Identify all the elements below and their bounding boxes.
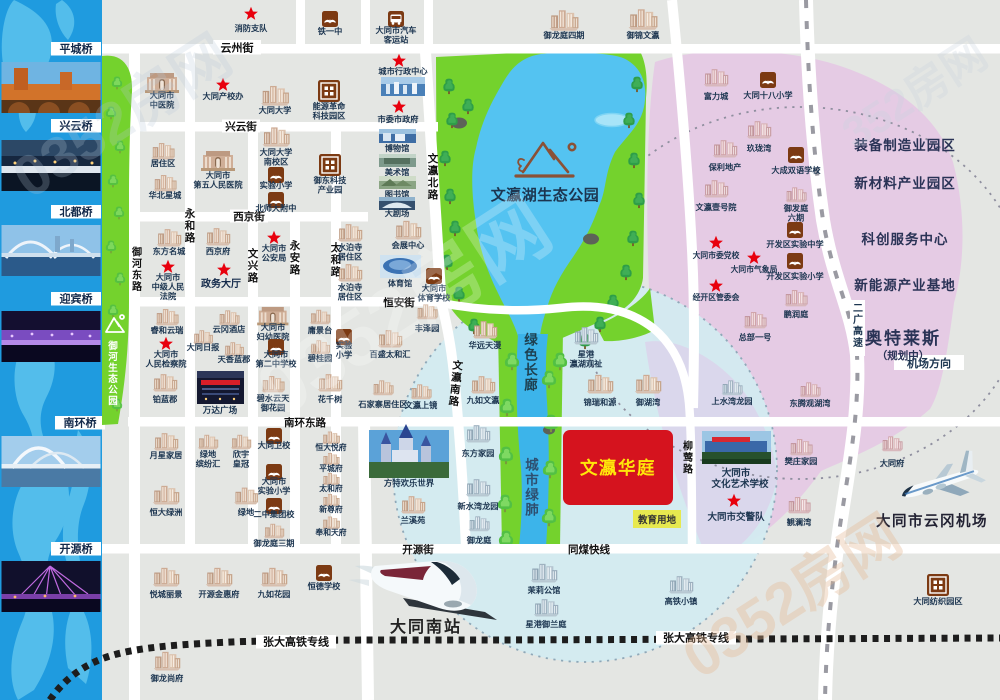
- svg-text:樊庄家园: 樊庄家园: [785, 456, 818, 466]
- svg-text:二广高速: 二广高速: [853, 303, 863, 350]
- svg-text:兴云街: 兴云街: [225, 120, 257, 133]
- svg-text:大同市: 大同市: [262, 476, 287, 486]
- svg-text:新能源产业基地: 新能源产业基地: [854, 277, 956, 293]
- svg-text:御龙庭四期: 御龙庭四期: [543, 30, 585, 40]
- svg-text:科技园区: 科技园区: [313, 111, 346, 121]
- svg-text:市委市政府: 市委市政府: [378, 114, 419, 124]
- svg-text:开发区实验中学: 开发区实验中学: [766, 239, 823, 249]
- svg-text:御湖湾: 御湖湾: [635, 397, 661, 407]
- svg-text:九如花园: 九如花园: [257, 589, 291, 599]
- svg-text:新材料产业园区: 新材料产业园区: [854, 175, 956, 191]
- svg-text:第五人民医院: 第五人民医院: [193, 180, 243, 190]
- svg-text:大剧场: 大剧场: [385, 208, 410, 218]
- svg-text:鹏润庭: 鹏润庭: [784, 309, 809, 319]
- svg-text:博物馆: 博物馆: [385, 143, 410, 153]
- svg-text:富力城: 富力城: [704, 91, 729, 101]
- svg-text:锦瑞和源: 锦瑞和源: [584, 397, 618, 407]
- svg-text:文瀛上镜: 文瀛上镜: [405, 400, 439, 410]
- svg-text:御发庭: 御发庭: [783, 203, 809, 213]
- svg-text:上水湾龙园: 上水湾龙园: [712, 396, 753, 406]
- svg-text:玖珑湾: 玖珑湾: [747, 143, 772, 153]
- svg-text:保利地产: 保利地产: [708, 162, 742, 172]
- svg-text:水泊寺: 水泊寺: [338, 242, 363, 252]
- svg-text:睿和云瑞: 睿和云瑞: [151, 325, 184, 335]
- svg-text:绿色长廊: 绿色长廊: [524, 331, 538, 392]
- svg-text:恒德学校: 恒德学校: [308, 581, 342, 591]
- svg-text:居住区: 居住区: [151, 158, 176, 168]
- svg-text:大成双语学校: 大成双语学校: [771, 165, 821, 175]
- svg-text:兰溪苑: 兰溪苑: [401, 515, 426, 525]
- svg-text:总部一号: 总部一号: [739, 332, 772, 342]
- svg-text:迎宾桥: 迎宾桥: [60, 292, 94, 306]
- svg-text:能源革命: 能源革命: [313, 101, 347, 111]
- svg-text:经开区管委会: 经开区管委会: [693, 292, 740, 302]
- svg-text:产业园: 产业园: [318, 185, 343, 195]
- svg-text:居住区: 居住区: [338, 252, 363, 262]
- svg-text:大同府: 大同府: [880, 458, 905, 468]
- svg-text:大同市: 大同市: [206, 170, 231, 180]
- svg-text:御龙尚府: 御龙尚府: [150, 673, 184, 683]
- svg-text:平城桥: 平城桥: [60, 42, 94, 56]
- svg-text:政务大厅: 政务大厅: [201, 277, 241, 290]
- svg-text:六期: 六期: [788, 213, 804, 223]
- svg-text:文化艺术学校: 文化艺术学校: [710, 478, 769, 490]
- svg-text:缤纷汇: 缤纷汇: [196, 459, 221, 469]
- svg-text:御河生态公园: 御河生态公园: [107, 340, 118, 407]
- svg-text:云冈酒店: 云冈酒店: [213, 324, 246, 334]
- svg-text:恒大悦府: 恒大悦府: [315, 442, 346, 452]
- svg-text:大同市: 大同市: [154, 349, 179, 359]
- svg-text:铂蓝郡: 铂蓝郡: [153, 394, 178, 404]
- svg-text:公安局: 公安局: [262, 253, 287, 263]
- svg-text:茉莉公馆: 茉莉公馆: [527, 585, 561, 595]
- svg-text:大同日报: 大同日报: [187, 342, 221, 352]
- svg-text:御龙庭: 御龙庭: [466, 535, 492, 545]
- svg-text:绿地: 绿地: [200, 449, 217, 459]
- svg-text:南校区: 南校区: [264, 157, 289, 167]
- svg-text:华北星城: 华北星城: [149, 190, 183, 200]
- svg-text:中级人民: 中级人民: [152, 282, 185, 292]
- svg-text:大同十八小学: 大同十八小学: [743, 90, 792, 100]
- svg-text:北都桥: 北都桥: [60, 205, 94, 219]
- svg-text:九如文瀛: 九如文瀛: [466, 395, 501, 405]
- svg-text:客运站: 客运站: [383, 35, 409, 45]
- svg-text:科创服务中心: 科创服务中心: [862, 231, 949, 247]
- svg-text:欣宇: 欣宇: [233, 449, 249, 459]
- svg-text:二中集团校: 二中集团校: [254, 509, 296, 519]
- svg-text:实验小学: 实验小学: [260, 180, 293, 190]
- svg-text:北师大附中: 北师大附中: [256, 203, 297, 213]
- svg-text:开源桥: 开源桥: [60, 542, 94, 556]
- svg-text:东方家园: 东方家园: [462, 448, 495, 458]
- svg-text:新尊府: 新尊府: [319, 504, 343, 514]
- svg-text:瀛湖观祉: 瀛湖观祉: [570, 359, 604, 369]
- svg-text:开发区实验小学: 开发区实验小学: [766, 271, 823, 281]
- svg-text:城市行政中心: 城市行政中心: [378, 66, 428, 76]
- svg-text:南环桥: 南环桥: [64, 416, 98, 430]
- svg-text:大同市委党校: 大同市委党校: [693, 250, 740, 260]
- svg-text:文瀛壹号院: 文瀛壹号院: [696, 202, 738, 212]
- svg-text:绿地: 绿地: [238, 507, 255, 517]
- svg-text:美术馆: 美术馆: [385, 167, 410, 177]
- svg-text:文瀛北路: 文瀛北路: [427, 152, 439, 201]
- svg-text:高铁小镇: 高铁小镇: [665, 596, 699, 606]
- svg-text:星港: 星港: [578, 349, 595, 359]
- svg-text:张大高铁专线: 张大高铁专线: [263, 635, 329, 649]
- svg-text:永和路: 永和路: [184, 207, 196, 244]
- svg-text:御河东路: 御河东路: [131, 246, 143, 294]
- svg-text:石家寨居住区: 石家寨居住区: [357, 399, 407, 409]
- svg-text:柳莺路: 柳莺路: [683, 440, 694, 476]
- svg-text:恒大绿洲: 恒大绿洲: [150, 507, 183, 517]
- svg-text:方特欢乐世界: 方特欢乐世界: [384, 478, 435, 488]
- svg-text:大同市: 大同市: [262, 243, 287, 253]
- svg-text:大同市: 大同市: [722, 467, 751, 479]
- svg-text:大同大学: 大同大学: [260, 147, 293, 157]
- svg-text:文瀛华庭: 文瀛华庭: [580, 458, 656, 478]
- svg-text:御龙庭三期: 御龙庭三期: [253, 538, 295, 548]
- svg-text:大同纺织园区: 大同纺织园区: [913, 596, 962, 606]
- svg-text:开源街: 开源街: [402, 543, 434, 556]
- svg-text:开源金惠府: 开源金惠府: [199, 589, 240, 599]
- svg-text:大同市交警队: 大同市交警队: [707, 511, 765, 523]
- svg-text:西京府: 西京府: [206, 246, 231, 256]
- svg-text:东腾观湖湾: 东腾观湖湾: [790, 398, 832, 408]
- svg-text:大同市: 大同市: [156, 272, 181, 282]
- svg-text:月星家居: 月星家居: [149, 450, 183, 460]
- svg-text:平城府: 平城府: [319, 463, 343, 473]
- svg-text:同煤快线: 同煤快线: [568, 543, 610, 556]
- svg-text:文兴路: 文兴路: [247, 247, 259, 284]
- svg-text:城市绿肺: 城市绿肺: [525, 456, 539, 517]
- svg-text:大同市汽车: 大同市汽车: [376, 25, 417, 35]
- svg-text:大同卫校: 大同卫校: [258, 440, 292, 450]
- svg-text:法院: 法院: [160, 291, 177, 301]
- svg-text:皇冠: 皇冠: [233, 459, 250, 469]
- svg-text:大同市: 大同市: [261, 322, 286, 332]
- svg-text:铁一中: 铁一中: [318, 26, 343, 36]
- svg-text:大同大学: 大同大学: [259, 105, 292, 115]
- svg-text:消防支队: 消防支队: [235, 23, 269, 33]
- svg-text:大同南站: 大同南站: [390, 617, 462, 636]
- svg-text:万达广场: 万达广场: [202, 404, 238, 415]
- svg-text:教育用地: 教育用地: [637, 514, 677, 526]
- svg-text:华远天漫: 华远天漫: [469, 340, 503, 350]
- svg-text:人民检察院: 人民检察院: [146, 359, 188, 369]
- svg-text:観澜湾: 観澜湾: [787, 517, 812, 527]
- svg-text:星港御兰庭: 星港御兰庭: [526, 619, 568, 629]
- svg-text:东方名城: 东方名城: [153, 246, 187, 256]
- svg-text:奥特莱斯: 奥特莱斯: [865, 328, 941, 348]
- svg-text:太和府: 太和府: [318, 483, 343, 493]
- svg-text:永安路: 永安路: [289, 239, 301, 276]
- svg-text:（规划中）: （规划中）: [877, 349, 930, 362]
- svg-text:奉和天府: 奉和天府: [314, 527, 346, 537]
- svg-text:悦城丽景: 悦城丽景: [150, 589, 183, 599]
- svg-text:御东科技: 御东科技: [313, 175, 348, 185]
- svg-text:御锦文瀛: 御锦文瀛: [626, 30, 661, 40]
- svg-text:实验小学: 实验小学: [258, 486, 291, 496]
- svg-text:新水湾龙园: 新水湾龙园: [458, 501, 499, 511]
